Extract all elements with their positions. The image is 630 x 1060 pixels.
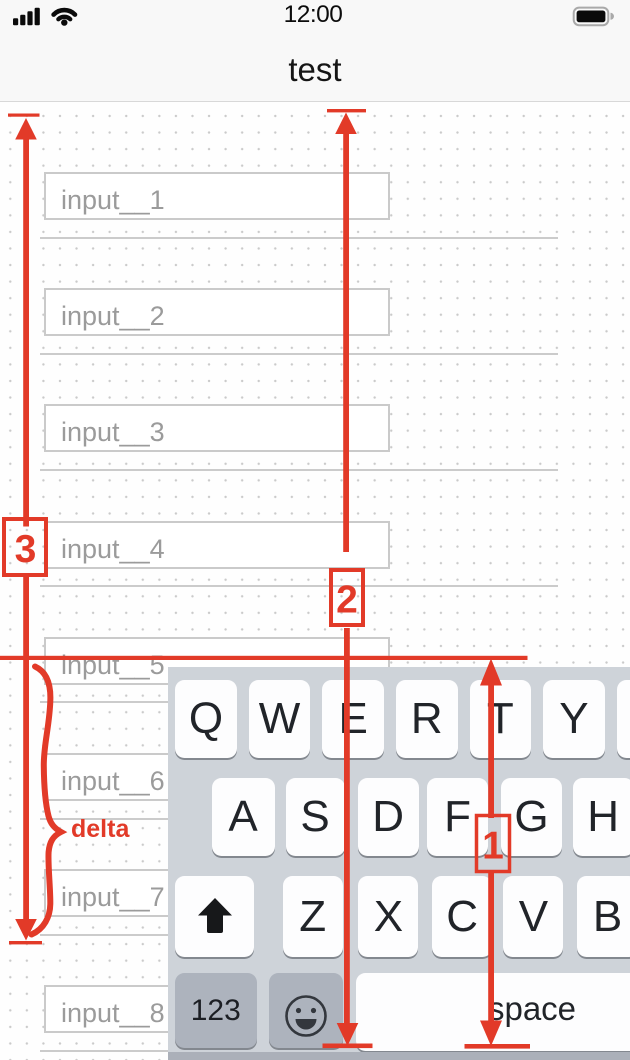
- svg-text:3: 3: [15, 528, 37, 571]
- svg-text:2: 2: [336, 579, 358, 622]
- svg-text:delta: delta: [71, 815, 130, 843]
- svg-text:1: 1: [482, 825, 504, 868]
